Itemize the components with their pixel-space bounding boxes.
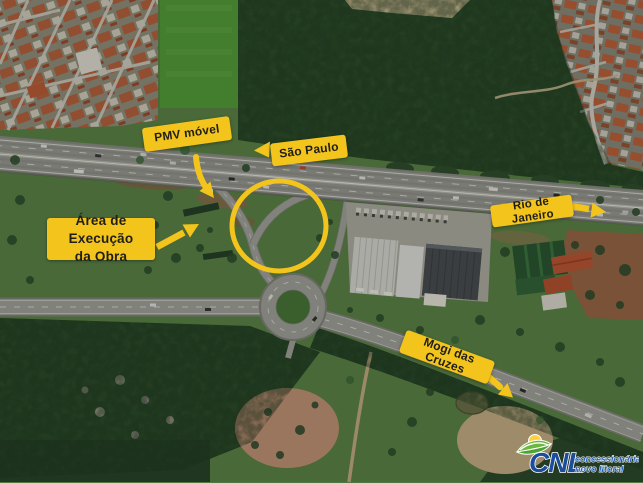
cnl-tagline-line2: novo litoral xyxy=(575,464,624,474)
highlight-circle xyxy=(232,181,326,271)
cnl-tagline-line1: concessionária xyxy=(575,454,639,464)
label-area-line1: Área de Execução xyxy=(47,212,155,248)
label-area-line2: da Obra xyxy=(75,248,127,266)
pmv-arrow xyxy=(196,157,214,198)
aerial-map-stage: PMV móvel São Paulo Rio de Janeiro Mogi … xyxy=(0,0,643,482)
label-pmv-text: PMV móvel xyxy=(153,123,220,145)
rio-arrow xyxy=(570,203,606,218)
label-area-execucao: Área de Execução da Obra xyxy=(47,218,155,260)
label-sao-paulo-text: São Paulo xyxy=(278,140,339,160)
cnl-logo: CNL concessionária novo litoral xyxy=(509,432,639,478)
area-arrow xyxy=(157,224,199,247)
